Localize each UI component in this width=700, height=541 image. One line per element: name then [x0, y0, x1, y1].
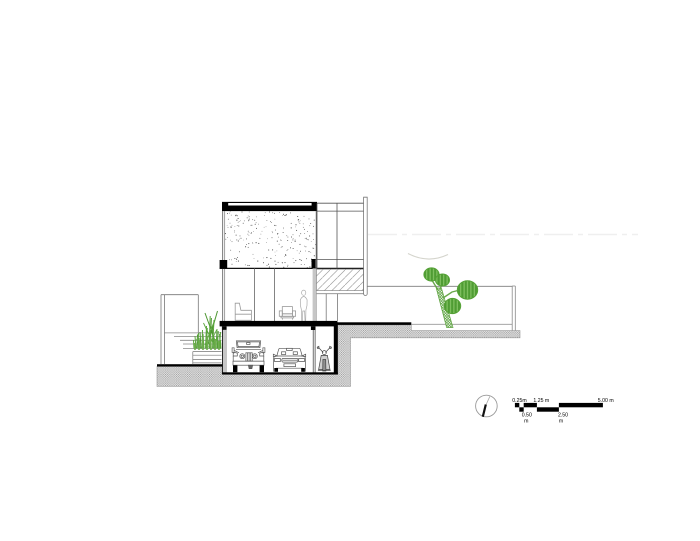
svg-text:5.00 m: 5.00 m [598, 398, 614, 404]
svg-text:m: m [524, 419, 528, 425]
svg-text:m: m [559, 419, 563, 425]
svg-text:1.25 m: 1.25 m [533, 398, 549, 404]
svg-text:0.25m: 0.25m [512, 398, 526, 404]
